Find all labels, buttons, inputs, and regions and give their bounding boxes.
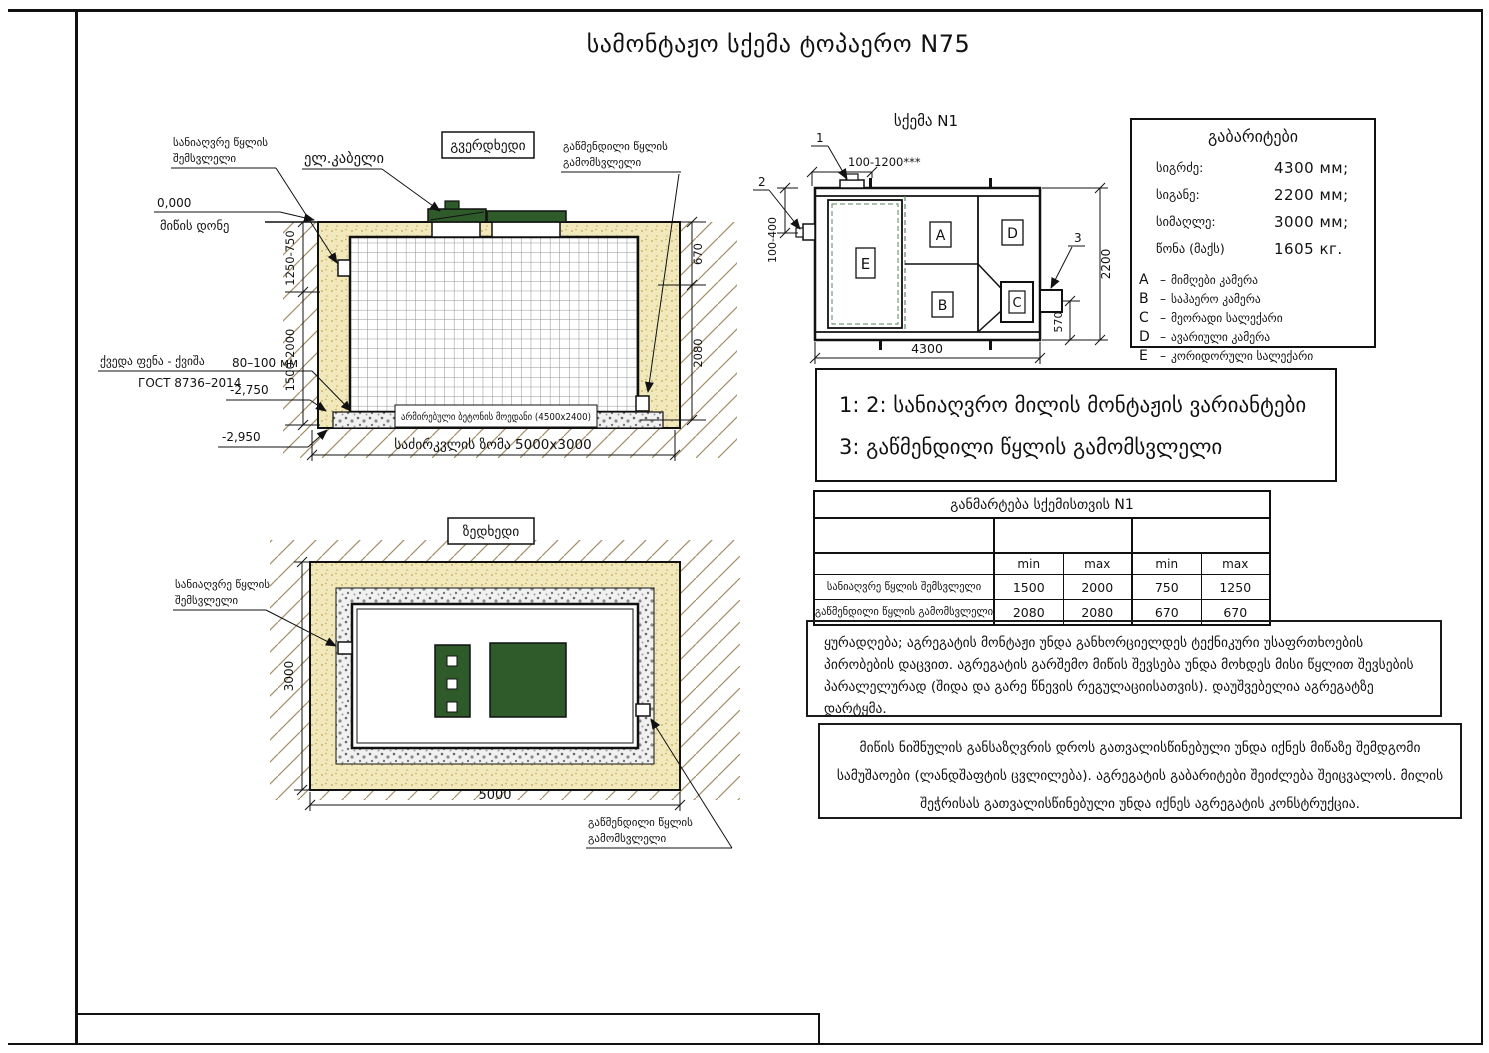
- param-value: 1605 кг.: [1274, 240, 1374, 258]
- scheme-title: სქემა N1: [894, 112, 958, 130]
- param-label: სიმაღლე:: [1156, 214, 1274, 229]
- legend-desc: მიმღები კამერა: [1171, 273, 1258, 287]
- compartment-c: C: [1012, 296, 1021, 311]
- frame-top: [8, 9, 1483, 12]
- page-title: სამონტაჟო სქემა ტოპაერო N75: [76, 30, 1481, 58]
- outlet-label-line2: გამომსვლელი: [563, 156, 642, 169]
- level-2950-label: -2,950: [222, 430, 261, 444]
- legend-row: C–მეორადი სალექარი: [1139, 310, 1374, 329]
- spec-table-group-header-2: [1132, 518, 1270, 553]
- parameters-panel: გაბარიტები სიგრძე:4300 мм; სიგანე:2200 м…: [1130, 118, 1376, 348]
- frame-right: [1481, 9, 1483, 1045]
- frame-titleblock-hline: [75, 1013, 820, 1015]
- variants-line-2: 3: გაწმენდილი წყლის გამომსვლელი: [839, 426, 1335, 468]
- warning-note: ყურადღება; აგრეგატის მონტაჟი უნდა განხორ…: [806, 620, 1442, 717]
- lid-cap: [445, 201, 459, 209]
- cell-value: 1500: [994, 575, 1063, 600]
- legend-key: A: [1139, 272, 1155, 288]
- parameters-rows: სიგრძე:4300 мм; სიგანე:2200 мм; სიმაღლე:…: [1132, 154, 1374, 262]
- compartment-e: E: [861, 255, 870, 273]
- inlet-label-line2: შემსვლელი: [173, 152, 236, 165]
- row-label: სანიაღვრე წყლის შემსვლელი: [814, 575, 994, 600]
- col-header-min: min: [1132, 553, 1201, 575]
- legend-dash: –: [1155, 349, 1171, 363]
- gost-label: ГОСТ 8736–2014: [138, 376, 241, 390]
- scheme-n1-drawing: სქემა N1 A: [748, 100, 1138, 390]
- cell-value: 1250: [1201, 575, 1270, 600]
- legend-desc: კორიდორული სალექარი: [1171, 349, 1313, 363]
- legend-desc: ავარიული კამერა: [1171, 330, 1270, 344]
- dim-2080: 2080: [691, 338, 705, 367]
- outlet-label-line1: გაწმენდილი წყლის: [563, 140, 668, 153]
- compartment-b: B: [938, 298, 948, 314]
- param-label: სიგანე:: [1156, 187, 1274, 202]
- top-outlet-label-line1: გაწმენდილი წყლის: [588, 816, 693, 829]
- bottom-layer-size: 80–100 мм: [232, 356, 298, 370]
- param-value: 2200 мм;: [1274, 186, 1374, 204]
- side-view-label: გვერდხედი: [450, 137, 525, 154]
- drawing-sheet: სამონტაჟო სქემა ტოპაერო N75 0,000 მიწის …: [0, 0, 1489, 1053]
- bottom-layer-label: ქვედა ფენა - ქვიშა: [100, 354, 205, 368]
- compartment-a: A: [936, 228, 946, 244]
- dim-4300: 4300: [911, 341, 943, 356]
- variants-line-1: 1: 2: სანიაღვრო მილის მონტაჟის ვარიანტებ…: [839, 384, 1335, 426]
- ground-level-note: მიწის ნიშნულის განსაზღვრის დროს გათვალის…: [818, 723, 1462, 819]
- legend-dash: –: [1155, 330, 1171, 344]
- inlet-label-line1: სანიაღვრე წყლის: [173, 136, 268, 149]
- dim-100-1200: 100-1200***: [848, 155, 921, 169]
- param-label: წონა (მაქს): [1156, 241, 1274, 256]
- dim-100-400: 100-400: [766, 217, 779, 263]
- spec-table-corner-cell: [814, 518, 994, 553]
- dim-1250-750: 1250-750: [283, 230, 297, 285]
- pad-label: არმირებული ბეტონის მოედანი (4500x2400): [401, 411, 591, 423]
- top-view-label: ზედხედი: [463, 524, 520, 540]
- legend-key: C: [1139, 310, 1155, 326]
- cable-label: ელ.კაბელი: [304, 151, 384, 167]
- compartment-d: D: [1007, 226, 1018, 242]
- legend-row: A–მიმღები კამერა: [1139, 272, 1374, 291]
- scheme-body: [815, 188, 1040, 340]
- side-view-drawing: 0,000 მიწის დონე 1250-750 1500-2000 -2,7…: [80, 128, 750, 478]
- param-value: 4300 мм;: [1274, 159, 1374, 177]
- dim-2200: 2200: [1099, 249, 1113, 280]
- col-header-max: max: [1201, 553, 1270, 575]
- param-label: სიგრძე:: [1156, 160, 1274, 175]
- top-outlet-label-line2: გამომსვლელი: [588, 832, 667, 845]
- legend-dash: –: [1155, 292, 1171, 306]
- cell-value: 750: [1132, 575, 1201, 600]
- cell-value: 2000: [1063, 575, 1132, 600]
- inlet-fitting-top: [338, 642, 352, 654]
- legend-key: E: [1139, 348, 1155, 364]
- foundation-label: საძირკვლის ზომა 5000x3000: [394, 436, 591, 453]
- spec-table: განმარტება სქემისთვის N1 min max min max…: [813, 490, 1271, 626]
- dim-670: 670: [691, 243, 705, 265]
- inlet-fitting: [338, 260, 350, 276]
- top-inlet-label-line2: შემსვლელი: [175, 594, 238, 607]
- param-value: 3000 мм;: [1274, 213, 1374, 231]
- legend-desc: მეორადი სალექარი: [1171, 311, 1283, 325]
- legend-dash: –: [1155, 311, 1171, 325]
- dim-570: 570: [1052, 312, 1065, 333]
- frame-left: [75, 9, 78, 1045]
- frame-bottom: [8, 1043, 1483, 1045]
- legend-key: D: [1139, 329, 1155, 345]
- legend-row: E–კორიდორული სალექარი: [1139, 348, 1374, 367]
- col-header-max: max: [1063, 553, 1132, 575]
- legend-dash: –: [1155, 273, 1171, 287]
- col-header-min: min: [994, 553, 1063, 575]
- variants-note: 1: 2: სანიაღვრო მილის მონტაჟის ვარიანტებ…: [815, 368, 1337, 482]
- frame-titleblock-vline: [818, 1013, 820, 1044]
- callout-1-leader: [811, 146, 847, 179]
- equipment-block-2: [490, 643, 566, 717]
- outlet-fitting: [636, 396, 649, 411]
- callout-2-label: 2: [758, 175, 766, 189]
- callout-3-label: 3: [1074, 231, 1082, 245]
- dim-5000: 5000: [478, 788, 511, 803]
- ground-level-label: მიწის დონე: [160, 218, 229, 233]
- top-inlet-label-line1: სანიაღვრე წყლის: [175, 578, 270, 591]
- callout-1-label: 1: [816, 131, 824, 145]
- dim-3000: 3000: [282, 661, 296, 692]
- parameters-title: გაბარიტები: [1132, 127, 1374, 146]
- outlet-fitting-top: [636, 704, 650, 716]
- table-row: სანიაღვრე წყლის შემსვლელი 1500 2000 750 …: [814, 575, 1270, 600]
- spec-table-title: განმარტება სქემისთვის N1: [814, 491, 1270, 518]
- legend-desc: საჰაერო კამერა: [1171, 292, 1261, 306]
- callout-3-leader: [1051, 246, 1085, 288]
- legend-row: B–საჰაერო კამერა: [1139, 291, 1374, 310]
- legend-key: B: [1139, 291, 1155, 307]
- zero-level-label: 0,000: [157, 196, 191, 210]
- top-view-drawing: 3000 5000 სანიაღვრე წყლის შემსვლელი გაწმ…: [80, 512, 760, 872]
- legend-row: D–ავარიული კამერა: [1139, 329, 1374, 348]
- spec-table-header-empty: [814, 553, 994, 575]
- compartment-legend: A–მიმღები კამერა B–საჰაერო კამერა C–მეორ…: [1132, 272, 1374, 367]
- cable-leader: [302, 169, 440, 211]
- spec-table-group-header-1: [994, 518, 1132, 553]
- hatch-lid-2: [487, 211, 566, 222]
